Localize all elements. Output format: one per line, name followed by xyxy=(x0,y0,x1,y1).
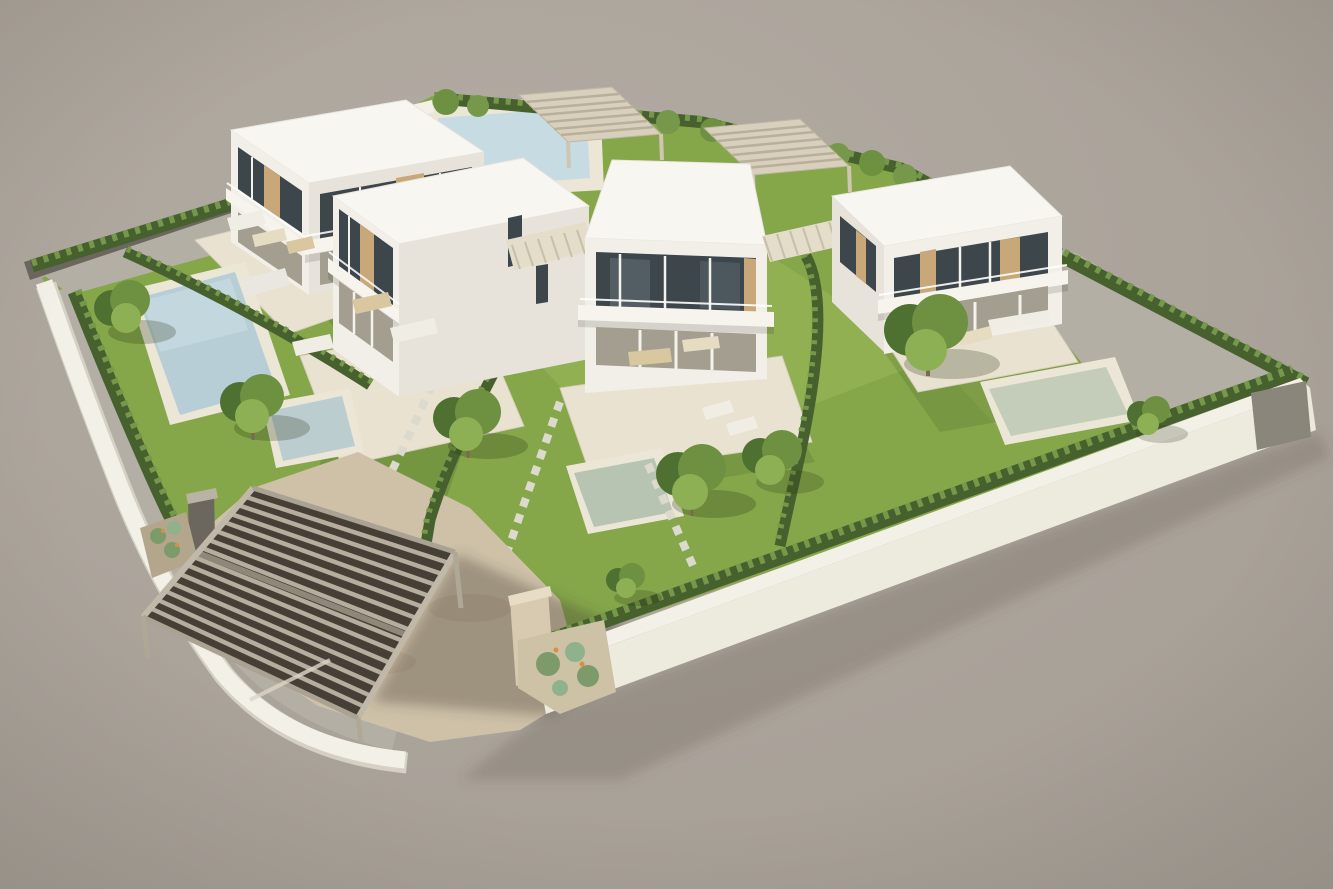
architectural-render xyxy=(0,0,1333,889)
render-canvas xyxy=(0,0,1333,889)
vignette xyxy=(0,0,1333,889)
